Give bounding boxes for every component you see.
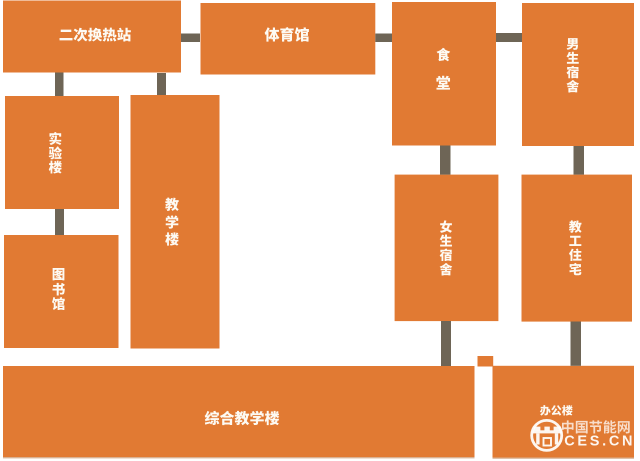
svg-text:CES.CN: CES.CN	[564, 434, 635, 450]
